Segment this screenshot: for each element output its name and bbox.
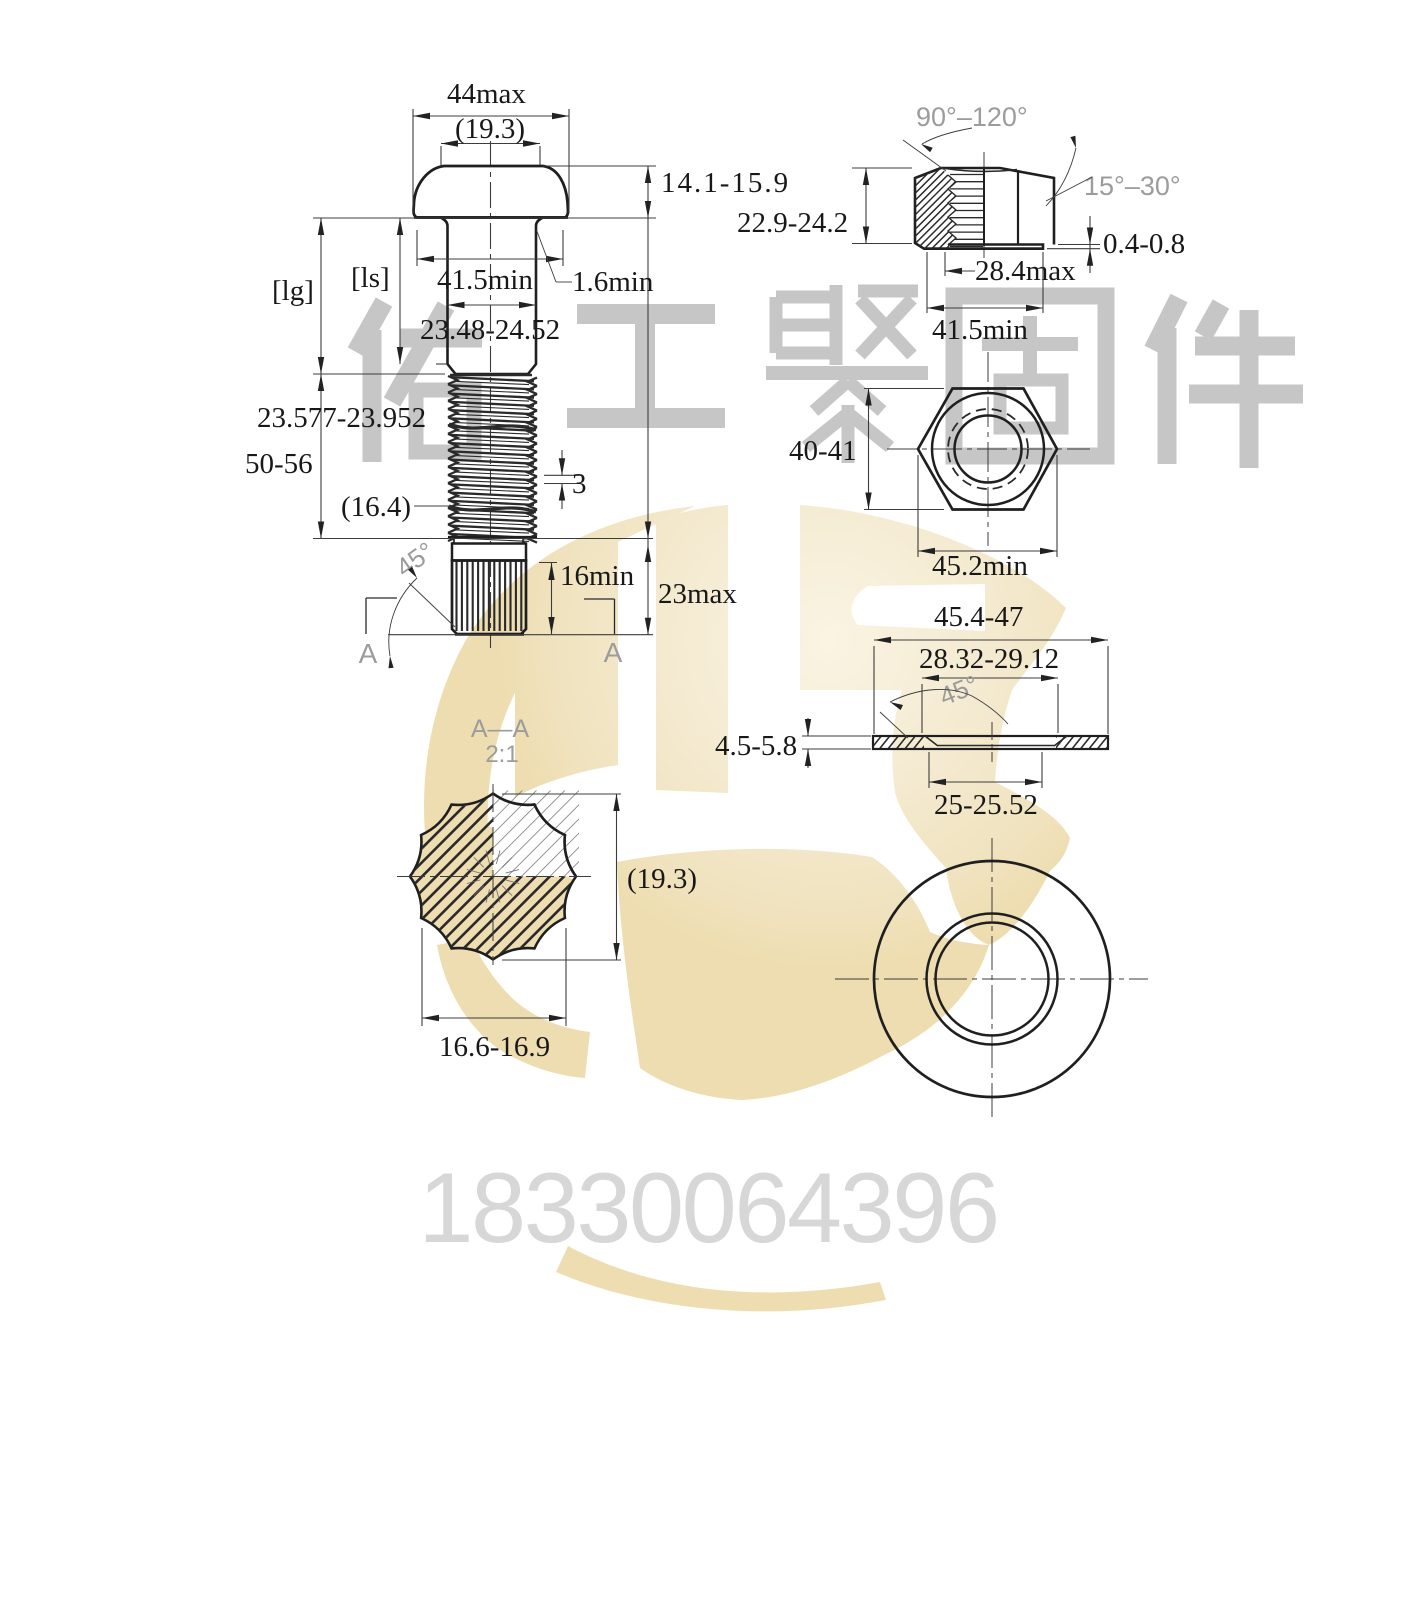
svg-text:16.6-16.9: 16.6-16.9 [439,1031,550,1063]
svg-text:A: A [604,637,623,668]
svg-text:3: 3 [572,468,587,500]
svg-text:23.48-24.52: 23.48-24.52 [420,314,560,346]
svg-text:40-41: 40-41 [789,435,857,467]
svg-text:45.2min: 45.2min [932,550,1028,582]
svg-text:41.5min: 41.5min [932,314,1028,346]
svg-text:[lg]: [lg] [272,275,314,307]
svg-text:(16.4): (16.4) [341,491,411,523]
svg-text:45.4-47: 45.4-47 [934,601,1023,633]
svg-text:(19.3): (19.3) [455,113,525,145]
svg-text:25-25.52: 25-25.52 [934,789,1038,821]
svg-text:A: A [359,638,378,669]
svg-text:50-56: 50-56 [245,448,313,480]
svg-text:23.577-23.952: 23.577-23.952 [257,402,426,434]
svg-text:1.6min: 1.6min [572,266,654,298]
svg-text:0.4-0.8: 0.4-0.8 [1103,228,1185,260]
svg-text:28.4max: 28.4max [975,255,1076,287]
svg-text:18330064396: 18330064396 [418,1152,997,1263]
svg-text:[ls]: [ls] [351,262,390,294]
svg-text:(19.3): (19.3) [627,863,697,895]
svg-text:4.5-5.8: 4.5-5.8 [715,730,797,762]
svg-text:2:1: 2:1 [485,741,518,768]
svg-text:44max: 44max [447,78,526,110]
svg-text:22.9-24.2: 22.9-24.2 [737,207,848,239]
svg-text:15°–30°: 15°–30° [1084,171,1181,201]
svg-text:41.5min: 41.5min [437,264,533,296]
svg-text:16min: 16min [560,560,635,592]
svg-text:28.32-29.12: 28.32-29.12 [919,643,1059,675]
svg-text:23max: 23max [658,578,737,610]
svg-text:14.1-15.9: 14.1-15.9 [661,167,790,199]
svg-text:A—A: A—A [471,715,530,743]
svg-text:90°–120°: 90°–120° [916,102,1028,132]
